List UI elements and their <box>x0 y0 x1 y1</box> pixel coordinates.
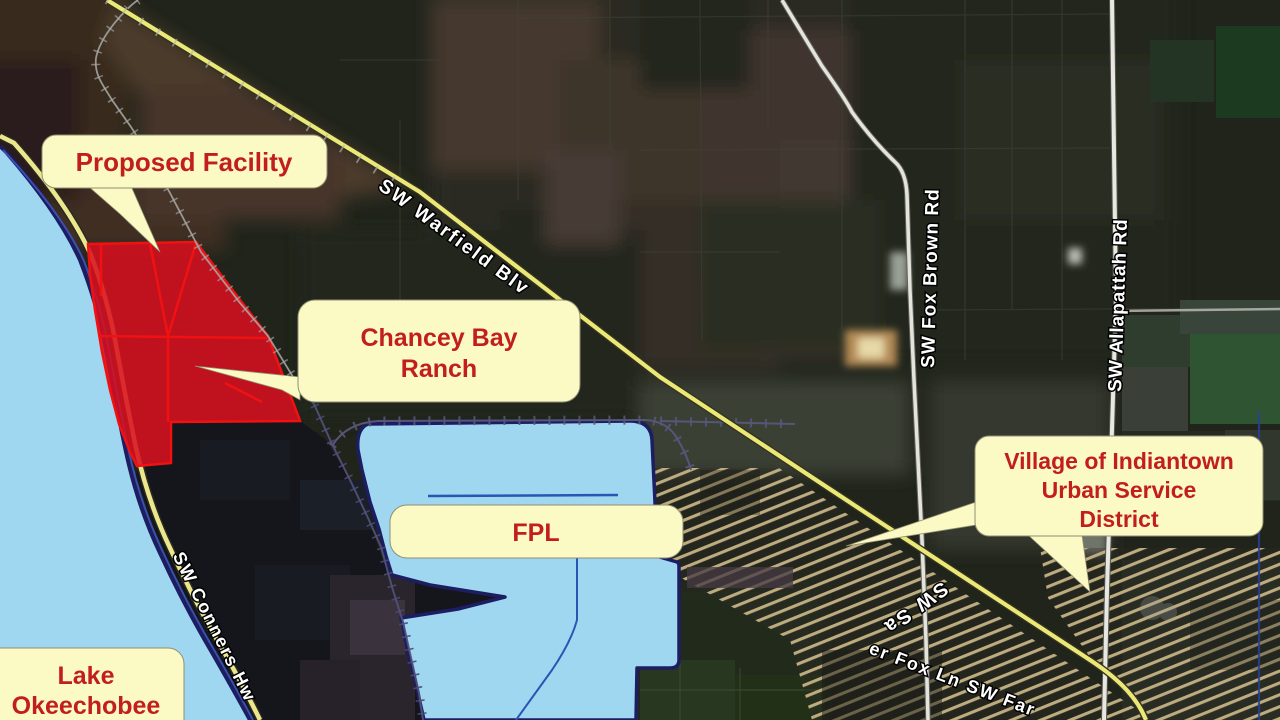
svg-text:District: District <box>1079 506 1159 532</box>
svg-text:Proposed Facility: Proposed Facility <box>76 147 293 177</box>
svg-text:Okeechobee: Okeechobee <box>12 692 161 720</box>
svg-text:Ranch: Ranch <box>401 355 477 383</box>
svg-text:FPL: FPL <box>512 519 559 547</box>
svg-text:Urban Service: Urban Service <box>1042 477 1197 503</box>
svg-text:Village of Indiantown: Village of Indiantown <box>1004 448 1234 474</box>
svg-text:Lake: Lake <box>58 662 115 690</box>
svg-text:Chancey Bay: Chancey Bay <box>360 324 517 352</box>
